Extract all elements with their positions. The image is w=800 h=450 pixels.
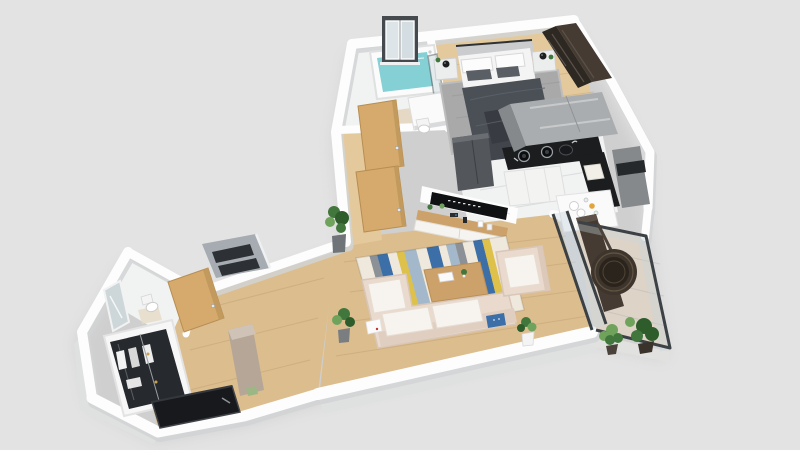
knob-2: [155, 381, 158, 384]
nightstand-plant-left: [436, 58, 441, 63]
plant-pot: [332, 234, 346, 253]
table-plant: [461, 269, 467, 275]
coffee-table-book: [438, 272, 454, 282]
nightstand-right: [532, 50, 556, 72]
console-speaker: [463, 217, 467, 223]
white-pillow: [366, 319, 382, 334]
window-pane-right: [401, 21, 414, 59]
table-lamp-left: [443, 61, 450, 68]
balcony-stub-wall: [645, 208, 648, 237]
plate-1: [570, 202, 579, 211]
plate-2: [577, 209, 585, 217]
wc-door-handle: [211, 304, 214, 307]
window-sill: [380, 62, 420, 65]
door-handle-upper: [395, 146, 398, 149]
nightstand-left: [434, 58, 458, 80]
armchair: [496, 246, 550, 296]
armchair-cushion: [504, 254, 540, 288]
console-plant-1: [427, 204, 432, 209]
console-frame-2: [487, 224, 492, 230]
pillow-gray-right: [496, 66, 520, 78]
window-pane-left: [386, 21, 399, 59]
floor-plan-render: [0, 0, 800, 450]
plant-pot: [338, 328, 350, 343]
cutting-board: [584, 164, 604, 180]
pillow-white-right: [495, 53, 525, 69]
console-plant-2: [439, 203, 444, 208]
table-lamp-right: [540, 53, 547, 60]
console-frame-1: [478, 221, 483, 227]
pillow-gray-left: [466, 69, 492, 81]
nightstand-plant-right: [549, 55, 554, 60]
casement-window: [380, 16, 420, 65]
chaise-cushion: [368, 279, 406, 313]
knob-1: [147, 353, 150, 356]
orange-cup: [589, 203, 595, 209]
tub-faucet: [428, 50, 431, 53]
hanging-egg-chair: [591, 249, 637, 295]
plant-pot-white: [522, 332, 534, 346]
glass-1: [584, 198, 588, 202]
door-handle-lower: [397, 208, 400, 211]
bathroom-toilet: [419, 125, 430, 133]
